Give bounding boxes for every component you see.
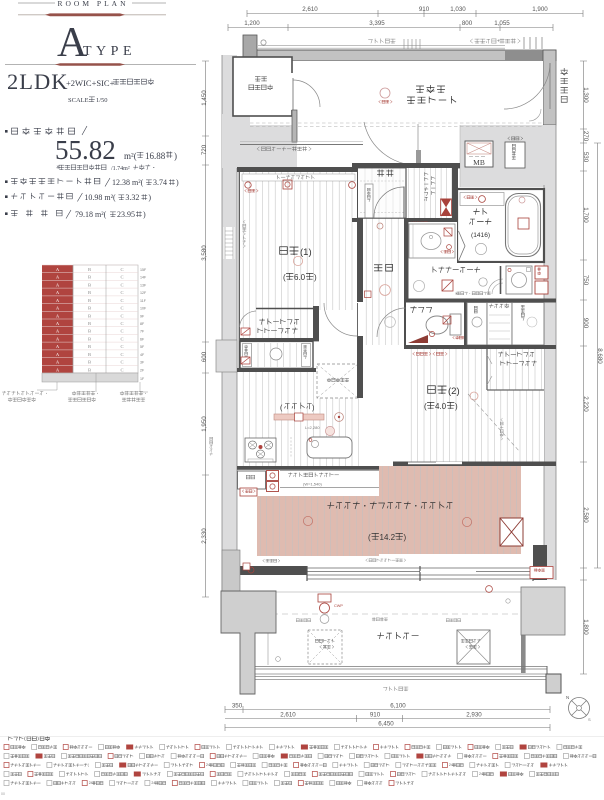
svg-text:B: B [88, 352, 91, 357]
svg-text:3,395: 3,395 [369, 20, 385, 27]
svg-text:15F: 15F [140, 268, 147, 272]
svg-text:4.0: 4.0 [435, 402, 447, 411]
svg-text:C: C [120, 336, 123, 341]
svg-text:1,900: 1,900 [532, 6, 548, 13]
svg-text:8,680: 8,680 [596, 348, 603, 364]
svg-text:): ) [455, 402, 458, 411]
svg-text:C: C [120, 367, 123, 372]
svg-text:800: 800 [462, 20, 473, 27]
svg-text:24: 24 [206, 763, 210, 767]
svg-text:N: N [566, 695, 569, 700]
svg-text:3.74: 3.74 [153, 178, 167, 187]
svg-text:S: S [588, 717, 591, 722]
svg-text:11F: 11F [140, 299, 147, 303]
svg-text:750: 750 [582, 275, 589, 286]
svg-text:2,610: 2,610 [280, 712, 296, 719]
svg-text:16.88: 16.88 [145, 151, 166, 161]
svg-text:2,930: 2,930 [466, 712, 482, 719]
svg-text:3.32: 3.32 [125, 193, 139, 202]
svg-text:B: B [88, 282, 91, 287]
svg-text:14F: 14F [140, 276, 147, 280]
svg-text:B: B [88, 360, 91, 365]
svg-text:C: C [120, 344, 123, 349]
svg-text:C: C [120, 290, 123, 295]
svg-text:C: C [120, 298, 123, 303]
svg-text:(1): (1) [300, 247, 312, 258]
svg-text:24: 24 [449, 763, 453, 767]
svg-text:910: 910 [419, 6, 430, 13]
svg-text:): ) [148, 193, 151, 202]
svg-text:B: B [88, 275, 91, 280]
svg-text:(: ( [283, 273, 286, 282]
svg-text:B: B [88, 329, 91, 334]
svg-text:B: B [88, 321, 91, 326]
svg-text:1,200: 1,200 [244, 20, 260, 27]
svg-text:79.18 m²(: 79.18 m²( [75, 210, 107, 219]
svg-text:ROOM PLAN: ROOM PLAN [58, 0, 129, 8]
svg-text:55.82: 55.82 [55, 135, 116, 165]
svg-text:B: B [88, 336, 91, 341]
svg-text:C: C [120, 267, 123, 272]
svg-text:C: C [120, 360, 123, 365]
svg-text:900: 900 [582, 318, 589, 329]
svg-text:1,800: 1,800 [582, 619, 589, 635]
svg-text:600: 600 [201, 351, 208, 362]
svg-text:): ) [312, 405, 314, 412]
svg-text:12F: 12F [140, 291, 147, 295]
svg-text:): ) [176, 178, 179, 187]
svg-text:B: B [88, 313, 91, 318]
svg-text:C: C [120, 352, 123, 357]
svg-text:2,580: 2,580 [582, 507, 589, 523]
svg-text:/1.74m²: /1.74m² [111, 166, 130, 172]
svg-text:270: 270 [582, 131, 589, 142]
svg-text:1/50: 1/50 [96, 97, 108, 104]
svg-text:24: 24 [479, 772, 483, 776]
svg-text:2LDK: 2LDK [7, 69, 69, 94]
svg-text:6,450: 6,450 [378, 721, 394, 728]
svg-text:13F: 13F [140, 283, 147, 287]
svg-text:1,030: 1,030 [450, 6, 466, 13]
svg-text:3,580: 3,580 [201, 245, 208, 261]
svg-text:530: 530 [582, 152, 589, 163]
svg-text:10.98 m²(: 10.98 m²( [84, 193, 116, 202]
svg-text:720: 720 [201, 144, 208, 155]
svg-text:): ) [314, 273, 317, 282]
svg-text:B: B [88, 290, 91, 295]
svg-text:(2): (2) [448, 386, 460, 397]
svg-text:23.95: 23.95 [117, 210, 135, 219]
svg-text:(: ( [368, 533, 371, 542]
svg-text:6.0: 6.0 [294, 273, 306, 282]
svg-text:TYPE: TYPE [83, 44, 136, 59]
svg-text:+2WIC+SIC+: +2WIC+SIC+ [66, 78, 115, 88]
svg-text:1,950: 1,950 [201, 416, 208, 432]
svg-text:B: B [88, 298, 91, 303]
svg-text:350: 350 [232, 703, 243, 710]
svg-text:): ) [143, 210, 146, 219]
svg-text:C: C [120, 306, 123, 311]
svg-text:1,055: 1,055 [494, 20, 510, 27]
svg-text:): ) [174, 151, 177, 161]
svg-text:): ) [404, 533, 407, 542]
svg-text:(: ( [424, 402, 427, 411]
svg-text:2,220: 2,220 [582, 396, 589, 412]
svg-text:(W=1,540): (W=1,540) [303, 482, 322, 487]
svg-text:C: C [120, 321, 123, 326]
svg-text:14.2: 14.2 [380, 533, 396, 542]
svg-text:00: 00 [1, 792, 5, 796]
svg-text:2,330: 2,330 [201, 528, 208, 544]
svg-text:24: 24 [89, 781, 93, 785]
svg-text:6,100: 6,100 [390, 703, 406, 710]
svg-text:1,300: 1,300 [582, 87, 589, 103]
svg-text:(1416): (1416) [471, 232, 490, 239]
svg-text:1,450: 1,450 [201, 90, 208, 106]
svg-text:B: B [88, 367, 91, 372]
svg-text:B: B [88, 267, 91, 272]
svg-text:SCALE:: SCALE: [68, 97, 91, 104]
svg-text:※: ※ [56, 165, 61, 171]
svg-text:910: 910 [370, 712, 381, 719]
svg-text:10F: 10F [140, 307, 147, 311]
svg-text:C: C [120, 313, 123, 318]
svg-text:CWP: CWP [334, 604, 343, 608]
svg-text:C: C [120, 275, 123, 280]
svg-text:1,700: 1,700 [582, 207, 589, 223]
svg-text:C: C [120, 329, 123, 334]
svg-text:MB: MB [473, 158, 485, 167]
svg-text:A: A [57, 20, 88, 66]
svg-text:B: B [88, 306, 91, 311]
svg-text:24: 24 [151, 781, 155, 785]
svg-text:m²(: m²( [124, 151, 137, 161]
svg-text:12.38 m²(: 12.38 m²( [112, 178, 144, 187]
svg-text:2,610: 2,610 [302, 6, 318, 13]
svg-text:B: B [88, 344, 91, 349]
svg-text:L=2,280: L=2,280 [305, 425, 320, 430]
svg-text:C: C [120, 282, 123, 287]
